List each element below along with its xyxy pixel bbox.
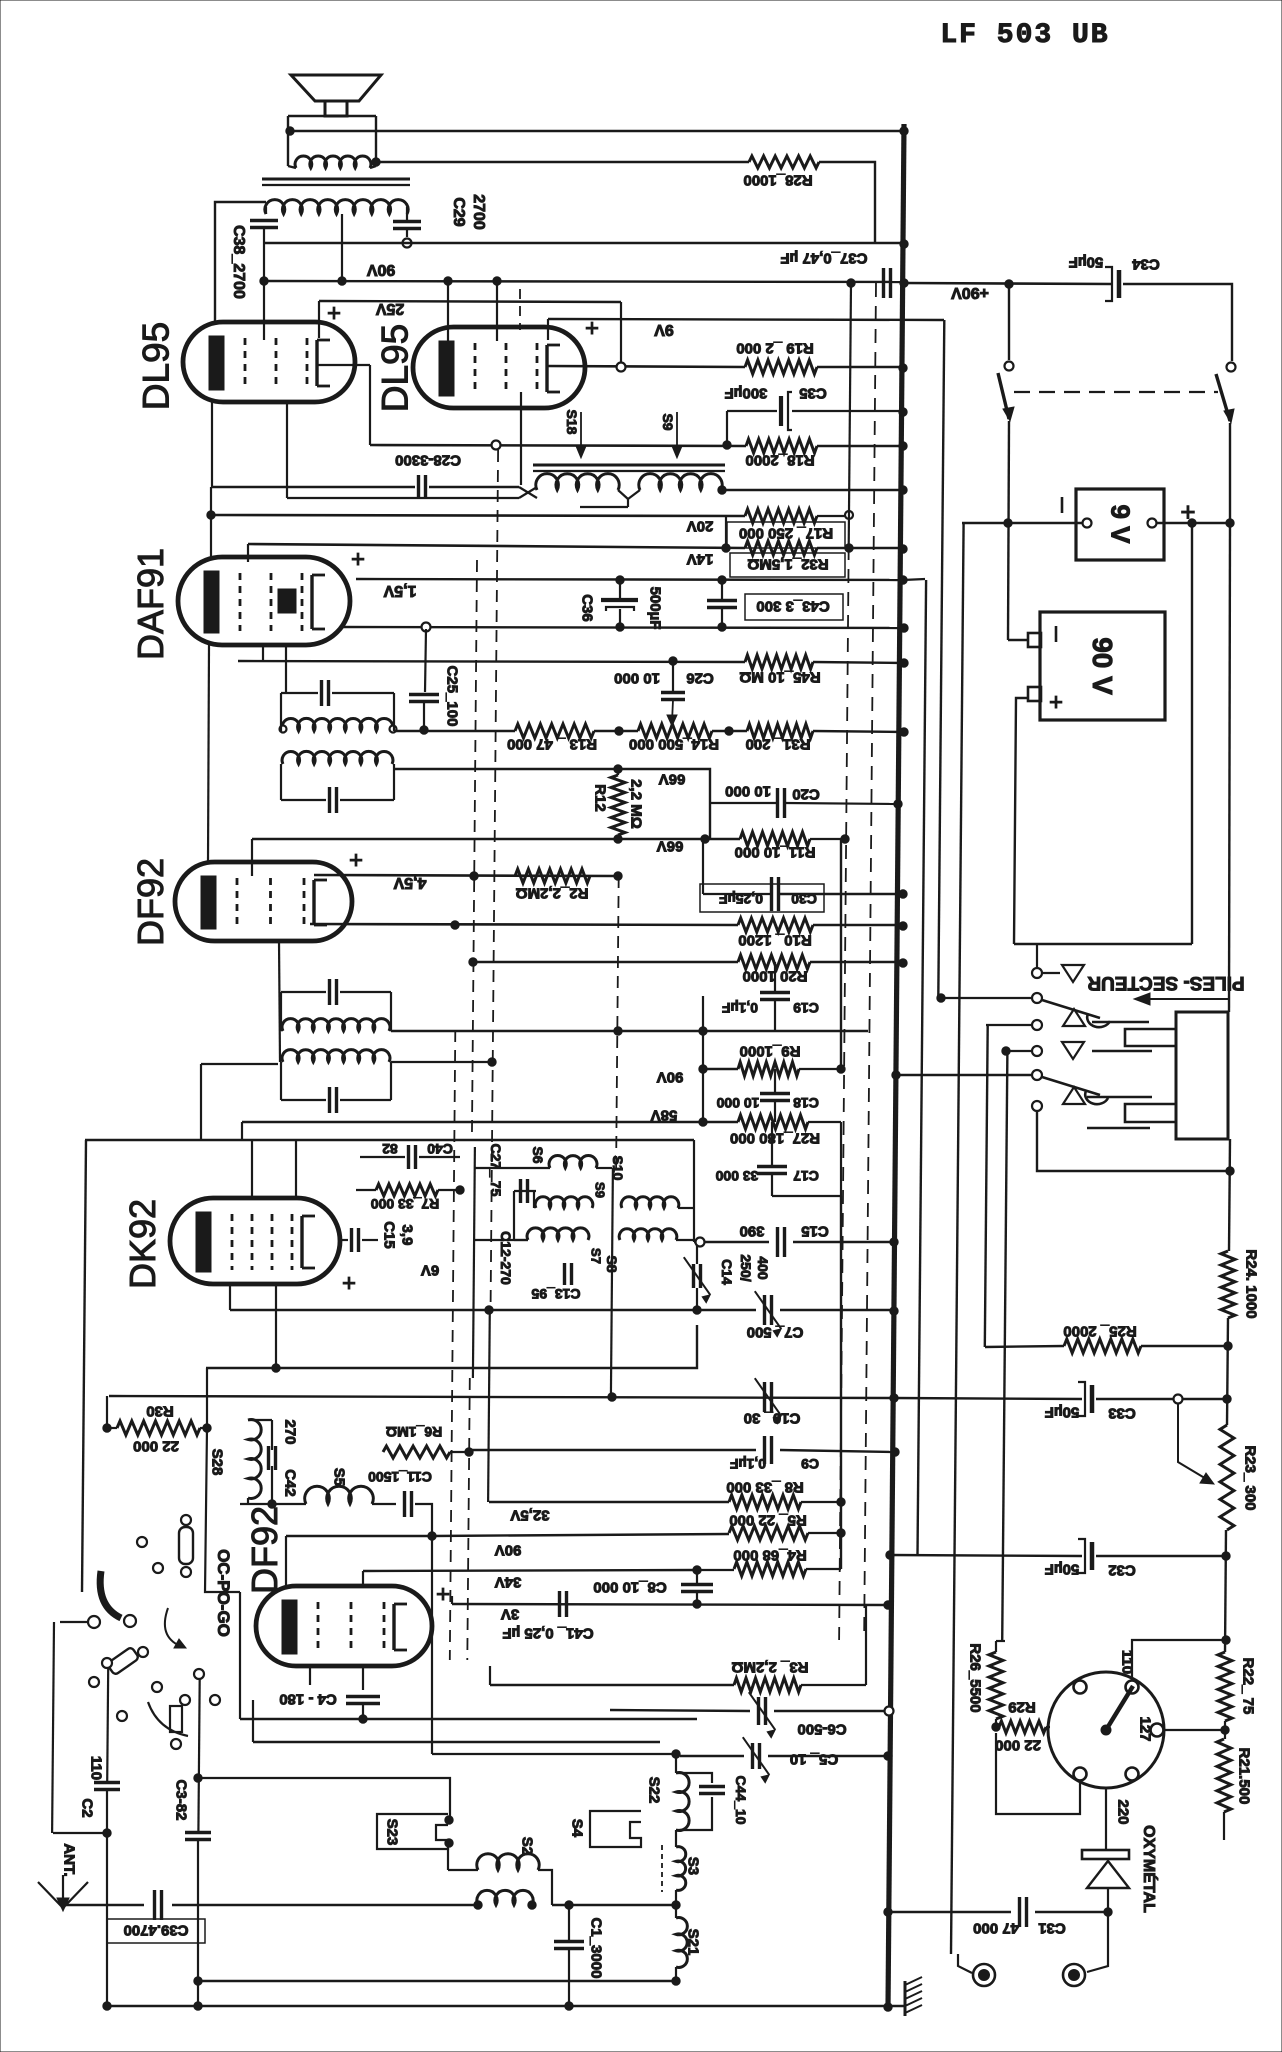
svg-text:C1_3000: C1_3000 [588, 1918, 605, 1979]
svg-text:C14: C14 [719, 1259, 735, 1285]
svg-text:R18_2000: R18_2000 [745, 452, 814, 469]
svg-text:C40: C40 [427, 1141, 453, 1157]
svg-text:50µF: 50µF [1045, 1561, 1080, 1578]
svg-text:R2_2,2MΩ: R2_2,2MΩ [516, 885, 589, 902]
svg-text:S28: S28 [209, 1449, 226, 1476]
svg-text:34V: 34V [495, 1574, 522, 1591]
svg-text:+: + [351, 546, 365, 573]
svg-text:90 V: 90 V [1087, 637, 1118, 695]
svg-text:10 000: 10 000 [716, 1095, 759, 1111]
svg-text:R24. 1000: R24. 1000 [1243, 1249, 1260, 1318]
svg-text:270: 270 [282, 1419, 299, 1444]
svg-text:C29: C29 [450, 197, 467, 226]
svg-text:C18: C18 [793, 1095, 819, 1111]
svg-text:C37_0,47 µF: C37_0,47 µF [780, 250, 867, 267]
svg-text:C26: C26 [686, 670, 714, 687]
svg-text:R29: R29 [1008, 1699, 1036, 1716]
svg-text:R30: R30 [146, 1403, 174, 1420]
svg-text:R25_ 2000: R25_ 2000 [1063, 1323, 1136, 1340]
svg-text:C11_1500: C11_1500 [368, 1469, 432, 1485]
svg-text:+: + [1049, 689, 1063, 716]
svg-text:R27_180 000: R27_180 000 [730, 1130, 820, 1147]
svg-text:C34: C34 [1132, 256, 1160, 273]
svg-text:R14_500 000: R14_500 000 [629, 736, 719, 753]
svg-text:R9_1000: R9_1000 [740, 1043, 801, 1060]
svg-text:22 000: 22 000 [133, 1438, 179, 1455]
svg-text:R19 _2 000: R19 _2 000 [736, 340, 814, 357]
svg-text:+: + [342, 1270, 356, 1297]
svg-text:R32_1,5MΩ: R32_1,5MΩ [747, 556, 828, 573]
svg-text:C5_ 10: C5_ 10 [790, 1751, 838, 1768]
svg-text:50µF: 50µF [1045, 1404, 1080, 1421]
svg-text:R6_1MΩ: R6_1MΩ [386, 1424, 442, 1440]
svg-text:R17_ 250 000: R17_ 250 000 [739, 525, 833, 542]
svg-text:10 000: 10 000 [614, 670, 660, 687]
svg-text:DF92: DF92 [130, 858, 171, 946]
svg-text:390: 390 [739, 1223, 764, 1240]
svg-text:+: + [436, 1581, 450, 1608]
svg-text:300µF: 300µF [725, 385, 768, 402]
svg-text:OXYMÉTAL: OXYMÉTAL [1140, 1825, 1159, 1913]
svg-text:220: 220 [1115, 1799, 1132, 1824]
svg-text:32,5V: 32,5V [510, 1507, 549, 1524]
svg-text:DL95: DL95 [374, 324, 415, 412]
svg-text:+: + [349, 847, 363, 874]
svg-text:2,2 MΩ: 2,2 MΩ [628, 779, 645, 829]
svg-text:C4 - 180: C4 - 180 [279, 1691, 337, 1708]
svg-text:33 000: 33 000 [715, 1168, 758, 1184]
svg-text:C9: C9 [801, 1456, 819, 1472]
svg-text:0,1µF: 0,1µF [730, 1456, 767, 1472]
svg-text:R12: R12 [592, 784, 609, 812]
svg-text:+: + [327, 300, 341, 327]
svg-text:S4: S4 [569, 1819, 586, 1838]
svg-text:9V: 9V [654, 321, 674, 338]
svg-text:47 000: 47 000 [973, 1920, 1019, 1937]
svg-text:R11_10 000: R11_10 000 [735, 844, 816, 861]
svg-text:C3-82: C3-82 [173, 1780, 190, 1821]
svg-text:C31: C31 [1038, 1920, 1066, 1937]
svg-text:C35: C35 [799, 385, 827, 402]
svg-text:S21: S21 [685, 1929, 702, 1956]
svg-text:127: 127 [1137, 1716, 1154, 1741]
svg-text:0,25µF: 0,25µF [719, 891, 763, 907]
svg-text:C33: C33 [1108, 1405, 1136, 1422]
svg-text:66V: 66V [659, 771, 686, 788]
svg-text:DF92: DF92 [244, 1506, 285, 1594]
svg-text:C15: C15 [801, 1223, 829, 1240]
svg-text:R23_ 300: R23_ 300 [1242, 1445, 1259, 1510]
svg-text:S3: S3 [685, 1857, 702, 1875]
svg-text:R31_ 200: R31_ 200 [745, 736, 810, 753]
svg-text:DAF91: DAF91 [130, 548, 171, 660]
svg-text:S9: S9 [660, 413, 676, 430]
svg-text:C8_10 000: C8_10 000 [593, 1579, 666, 1596]
svg-text:C27_ 75: C27_ 75 [488, 1144, 504, 1197]
svg-text:400: 400 [755, 1256, 771, 1280]
svg-text:4,5V: 4,5V [393, 874, 426, 891]
svg-text:R26_5500: R26_5500 [967, 1643, 984, 1712]
svg-text:C6-500: C6-500 [797, 1721, 846, 1738]
svg-text:2700: 2700 [470, 194, 487, 230]
svg-text:R5_ 22 000: R5_ 22 000 [729, 1512, 807, 1529]
svg-text:C38_2700: C38_2700 [230, 225, 247, 299]
svg-text:ANT.: ANT. [61, 1843, 78, 1876]
svg-text:C43_3 300: C43_3 300 [756, 598, 829, 615]
svg-text:R7_33 000: R7_33 000 [371, 1196, 440, 1212]
svg-text:25V: 25V [375, 300, 404, 317]
svg-text:C13_95: C13_95 [531, 1286, 580, 1302]
svg-text:S18: S18 [564, 410, 580, 435]
svg-text:S5: S5 [331, 1468, 348, 1486]
svg-text:R8 _33 000: R8 _33 000 [726, 1479, 804, 1496]
svg-text:C39.4700: C39.4700 [123, 1922, 188, 1939]
svg-text:C10_ 30: C10_ 30 [744, 1410, 801, 1427]
svg-text:90V: 90V [495, 1542, 522, 1559]
svg-text:C32: C32 [1108, 1562, 1136, 1579]
svg-text:R45_10 MΩ: R45_10 MΩ [739, 669, 820, 686]
svg-text:10 000: 10 000 [725, 783, 771, 800]
svg-text:500µF: 500µF [647, 587, 664, 630]
svg-text:R28_1000: R28_1000 [743, 172, 812, 189]
svg-text:S2: S2 [519, 1837, 536, 1855]
svg-text:R3_ 2,2MΩ: R3_ 2,2MΩ [731, 1659, 808, 1676]
svg-text:C2: C2 [79, 1798, 96, 1817]
svg-text:C41_ 0,25 µF: C41_ 0,25 µF [502, 1625, 593, 1642]
svg-text:22 000: 22 000 [995, 1737, 1041, 1754]
svg-text:R10_ 1200: R10_ 1200 [738, 932, 811, 949]
svg-text:82: 82 [382, 1141, 398, 1157]
svg-text:C42: C42 [282, 1469, 299, 1497]
svg-text:0,1µF: 0,1µF [722, 1000, 759, 1016]
svg-text:C19: C19 [793, 1000, 819, 1016]
svg-text:C15: C15 [381, 1221, 398, 1249]
svg-text:9 V: 9 V [1106, 504, 1136, 544]
svg-text:S22: S22 [646, 1777, 663, 1804]
svg-text:90V: 90V [657, 1069, 684, 1086]
svg-text:3,9: 3,9 [399, 1225, 416, 1246]
svg-text:S6: S6 [530, 1146, 546, 1163]
svg-text:14V: 14V [687, 551, 714, 568]
svg-text:DL95: DL95 [135, 322, 176, 410]
svg-text:C7_ 500: C7_ 500 [747, 1324, 804, 1341]
svg-text:C17: C17 [793, 1168, 819, 1184]
svg-text:250/: 250/ [738, 1254, 754, 1281]
svg-text:DK92: DK92 [122, 1199, 163, 1289]
svg-text:R4_68 000: R4_68 000 [733, 1547, 806, 1564]
svg-text:66V: 66V [657, 838, 684, 855]
svg-text:C25_100: C25_100 [444, 666, 461, 727]
svg-text:S23: S23 [384, 1819, 401, 1846]
svg-text:50µF: 50µF [1069, 254, 1104, 271]
svg-text:R21.500: R21.500 [1236, 1748, 1253, 1805]
svg-text:6V: 6V [421, 1262, 439, 1279]
svg-text:S7: S7 [588, 1248, 603, 1264]
svg-text:R13 _ 47 000: R13 _ 47 000 [507, 736, 597, 753]
svg-text:C20: C20 [792, 786, 820, 803]
svg-text:3V: 3V [501, 1606, 519, 1623]
svg-text:S9: S9 [592, 1182, 607, 1198]
svg-text:PILES- SECTEUR: PILES- SECTEUR [1087, 972, 1245, 993]
svg-text:+90V: +90V [951, 284, 989, 301]
svg-text:C36: C36 [579, 594, 596, 622]
svg-text:1,5V: 1,5V [383, 582, 416, 599]
svg-text:R22_ 75: R22_ 75 [1240, 1658, 1257, 1715]
svg-text:20V: 20V [687, 518, 714, 535]
svg-text:90V: 90V [366, 261, 395, 278]
svg-text:OC-PO-GO: OC-PO-GO [214, 1549, 233, 1637]
svg-text:LF 503 UB: LF 503 UB [940, 20, 1109, 51]
svg-text:C28-3300: C28-3300 [395, 452, 461, 469]
svg-text:C30: C30 [791, 891, 817, 907]
svg-text:110: 110 [88, 1756, 105, 1780]
svg-text:C44_10: C44_10 [733, 1775, 749, 1824]
